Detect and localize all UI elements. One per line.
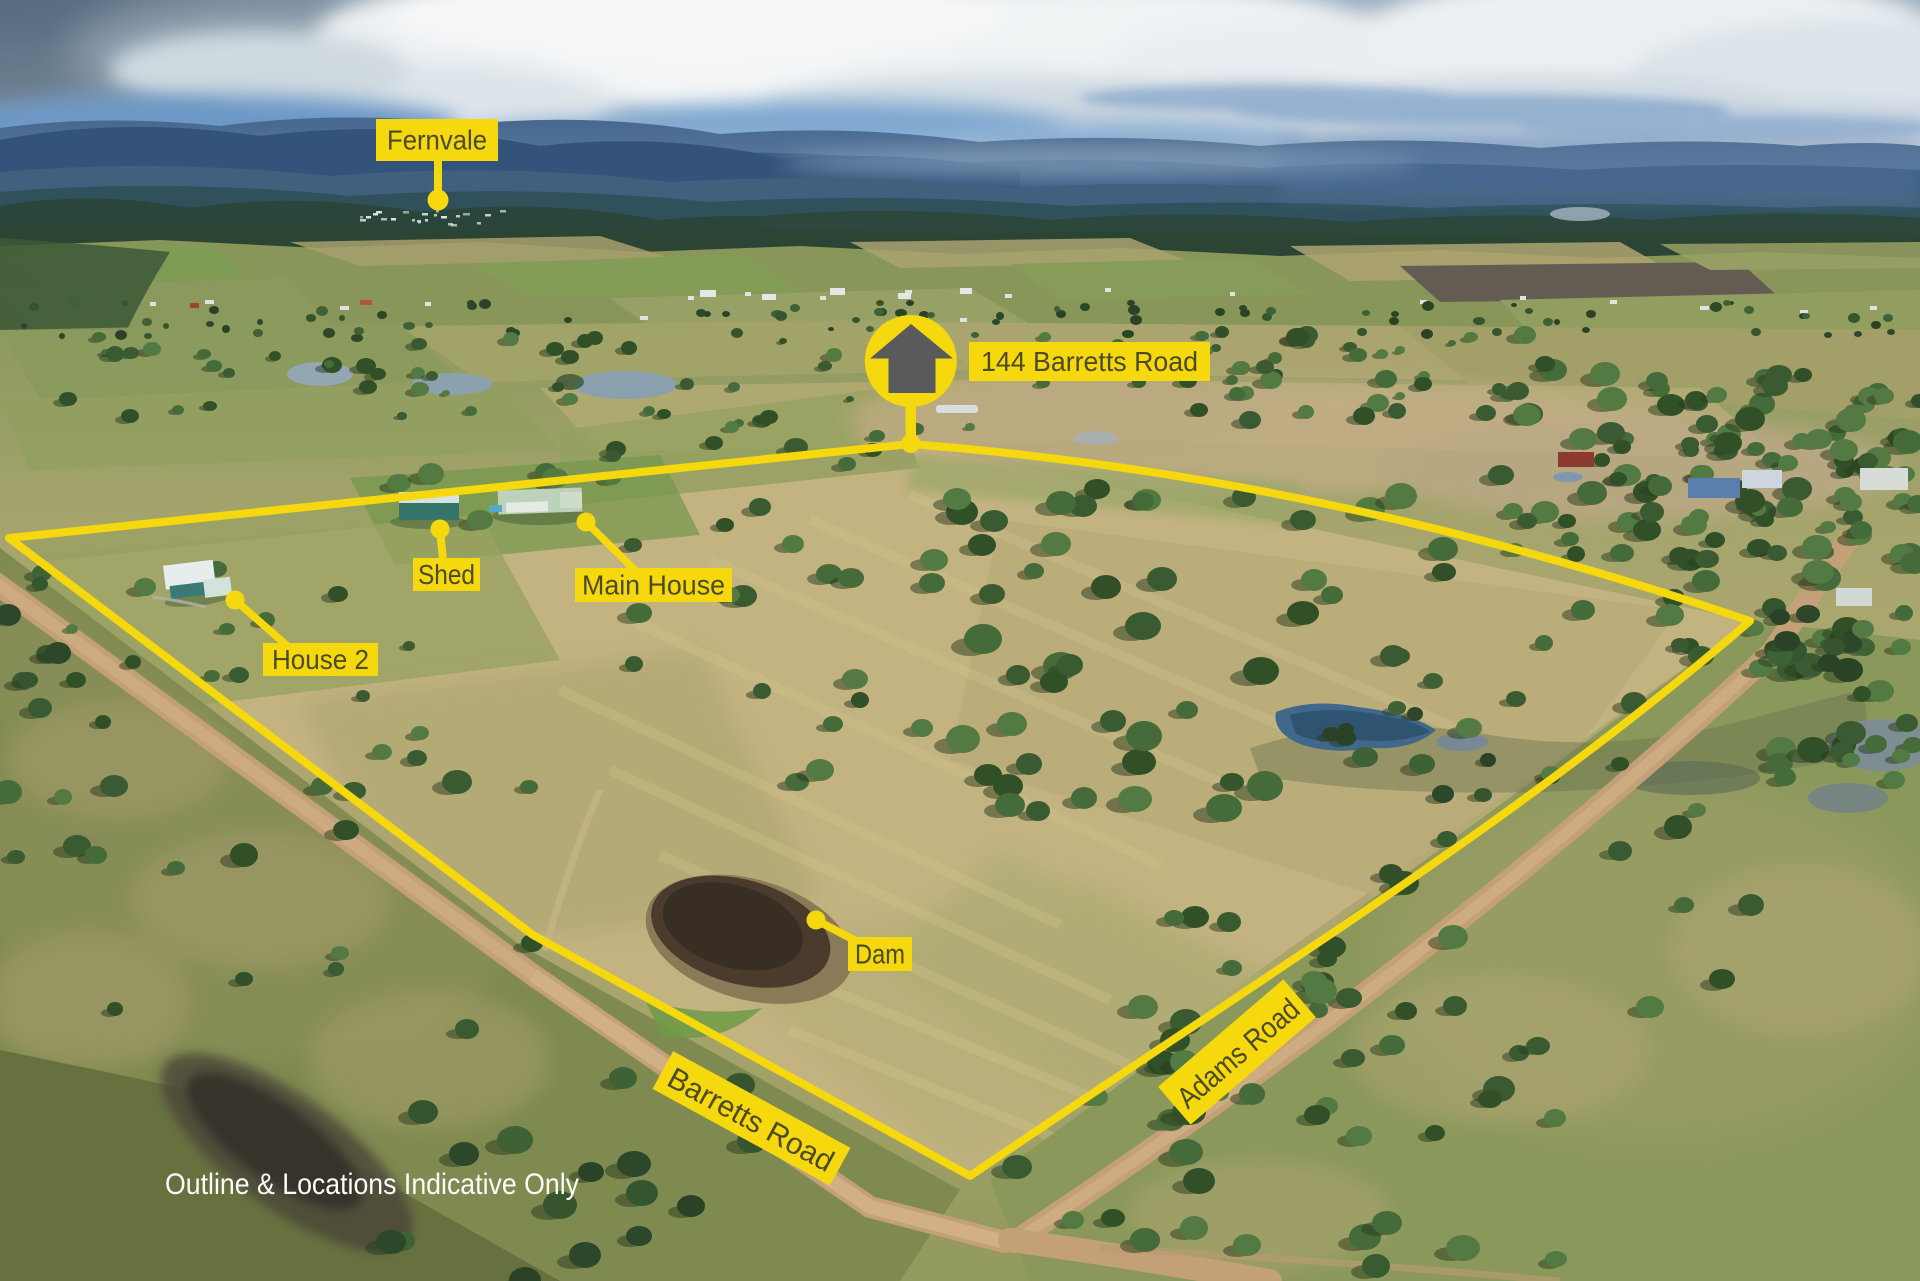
svg-text:Main House: Main House <box>582 570 725 601</box>
svg-text:Outline & Locations Indicative: Outline & Locations Indicative Only <box>165 1168 579 1201</box>
svg-text:House 2: House 2 <box>272 644 369 675</box>
svg-text:144 Barretts Road: 144 Barretts Road <box>981 346 1198 377</box>
svg-text:Dam: Dam <box>855 939 905 970</box>
svg-text:Fernvale: Fernvale <box>387 125 487 156</box>
svg-text:Shed: Shed <box>418 559 475 590</box>
